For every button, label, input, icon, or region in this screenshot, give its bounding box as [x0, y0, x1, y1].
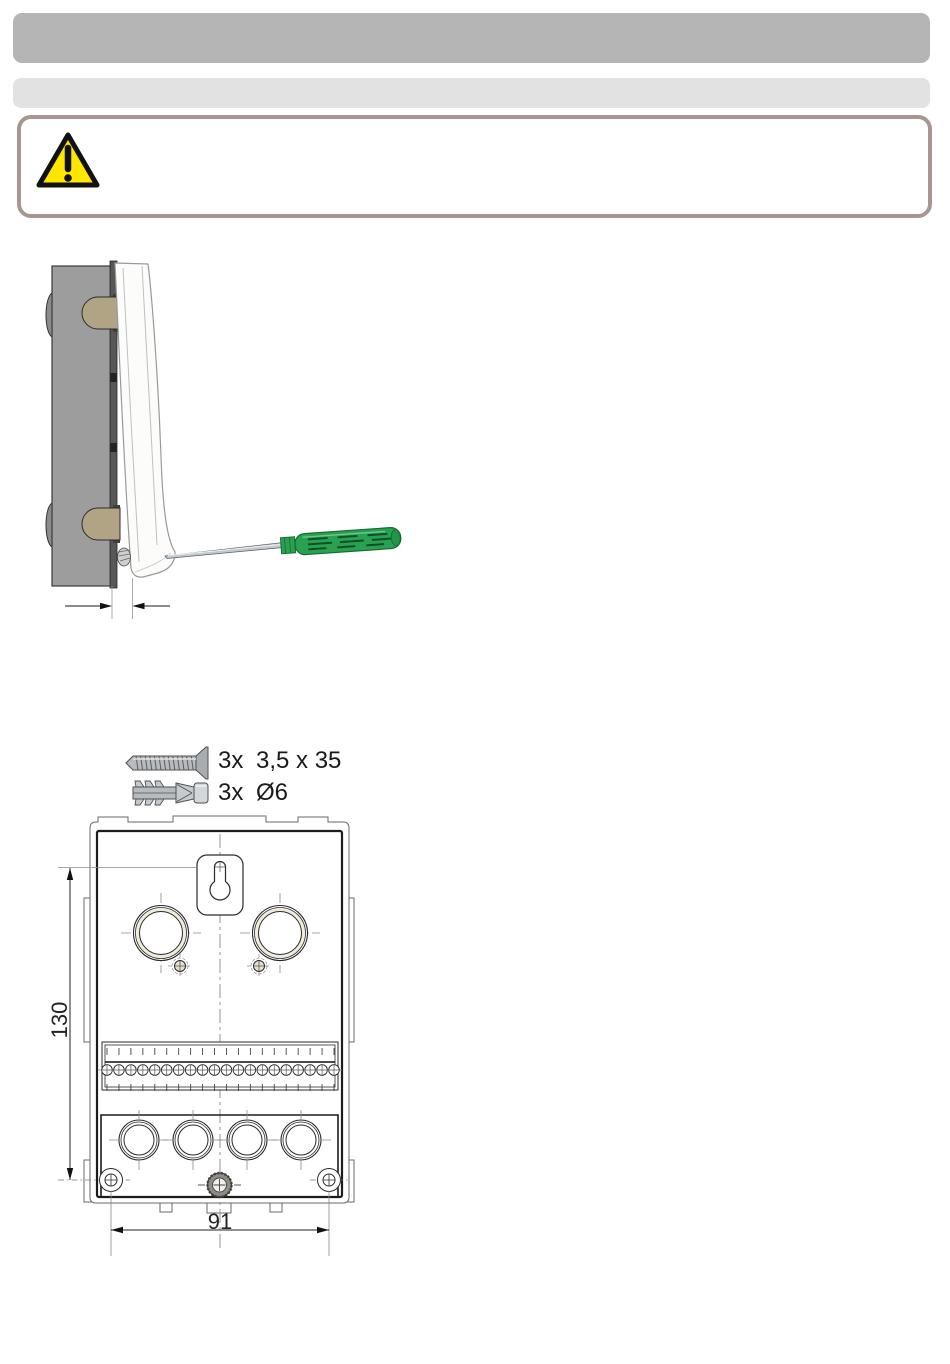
section-header-bar [13, 13, 930, 63]
warning-triangle-icon [36, 132, 100, 190]
width-dimension-label: 91 [196, 1209, 244, 1235]
screw-size-label: 3,5 x 35 [256, 747, 341, 775]
cover-screw [118, 548, 131, 566]
warning-note-box [17, 115, 932, 218]
manual-page: 3x 3,5 x 35 3x Ø6 [0, 0, 950, 1364]
subsection-header-bar [13, 78, 930, 108]
screw-qty-label: 3x [218, 747, 243, 775]
screwdriver [165, 527, 401, 559]
terminal-strip [98, 1042, 342, 1091]
screw-icon [126, 747, 208, 779]
plug-qty-label: 3x [218, 779, 243, 807]
screwdriver-handle [280, 527, 401, 556]
enclosure-open-figure [40, 256, 420, 626]
wall-plug-icon [133, 781, 208, 805]
plug-size-label: Ø6 [256, 779, 288, 807]
keyhole-mount-slot [197, 855, 243, 915]
mounting-dimensions-drawing [46, 812, 376, 1264]
height-dimension-label: 130 [47, 990, 71, 1050]
enclosure-cover [115, 263, 175, 577]
